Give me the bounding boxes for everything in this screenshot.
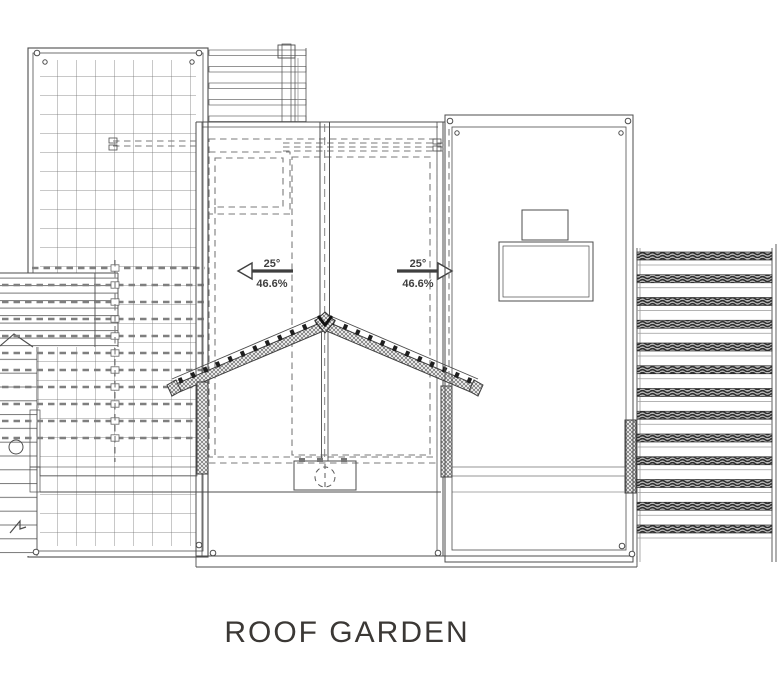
wood-slat bbox=[637, 275, 772, 283]
roof-garden-plan-sheet: 25° 46.6% 25° 46.6% bbox=[0, 0, 780, 674]
post-cap bbox=[278, 45, 295, 58]
wood-slat bbox=[637, 252, 772, 260]
wood-slat bbox=[637, 389, 772, 397]
right-slope-arrow: 25° 46.6% bbox=[397, 258, 452, 290]
left-slope-angle: 25° bbox=[264, 258, 281, 270]
stipple-wall-band-right bbox=[452, 467, 625, 476]
right-slope-grade: 46.6% bbox=[402, 278, 433, 290]
wood-slat bbox=[637, 343, 772, 351]
wood-slat bbox=[637, 434, 772, 442]
plan-title: ROOF GARDEN bbox=[224, 616, 469, 649]
roof-plan-drawing: 25° 46.6% 25° 46.6% bbox=[0, 0, 780, 674]
gable-roof-edge bbox=[167, 312, 636, 493]
left-slope-arrow: 25° 46.6% bbox=[238, 258, 293, 290]
louver-skylight-slats bbox=[503, 246, 589, 297]
skylight-dashed-inner bbox=[215, 158, 283, 207]
eave-column-right bbox=[441, 386, 452, 477]
right-slope-angle: 25° bbox=[410, 258, 427, 270]
wood-slat bbox=[637, 480, 772, 488]
bargeboard-right bbox=[320, 320, 475, 392]
bargeboard-left bbox=[176, 320, 331, 392]
wood-slat bbox=[637, 320, 772, 328]
wood-slat bbox=[637, 525, 772, 533]
wood-slat bbox=[637, 411, 772, 419]
right-roof-panel bbox=[445, 115, 633, 562]
louver-skylight-frame bbox=[499, 242, 593, 301]
wood-slat bbox=[637, 502, 772, 510]
wood-slat bbox=[637, 366, 772, 374]
stair-strip bbox=[0, 347, 37, 556]
right-wood-slat-deck bbox=[637, 244, 776, 562]
rafter-ticks-left bbox=[177, 321, 319, 382]
eave-column-left bbox=[197, 382, 208, 474]
left-slope-grade: 46.6% bbox=[256, 278, 287, 290]
chimney-box bbox=[522, 210, 568, 240]
top-wood-slat-screen bbox=[209, 44, 306, 122]
wood-slat bbox=[637, 457, 772, 465]
ridge-beam bbox=[320, 122, 330, 461]
arrow-head-left-icon bbox=[238, 263, 252, 279]
wood-slat bbox=[637, 298, 772, 306]
skylight-dashed-outer bbox=[209, 152, 290, 214]
eave-column-far-right bbox=[625, 420, 636, 493]
